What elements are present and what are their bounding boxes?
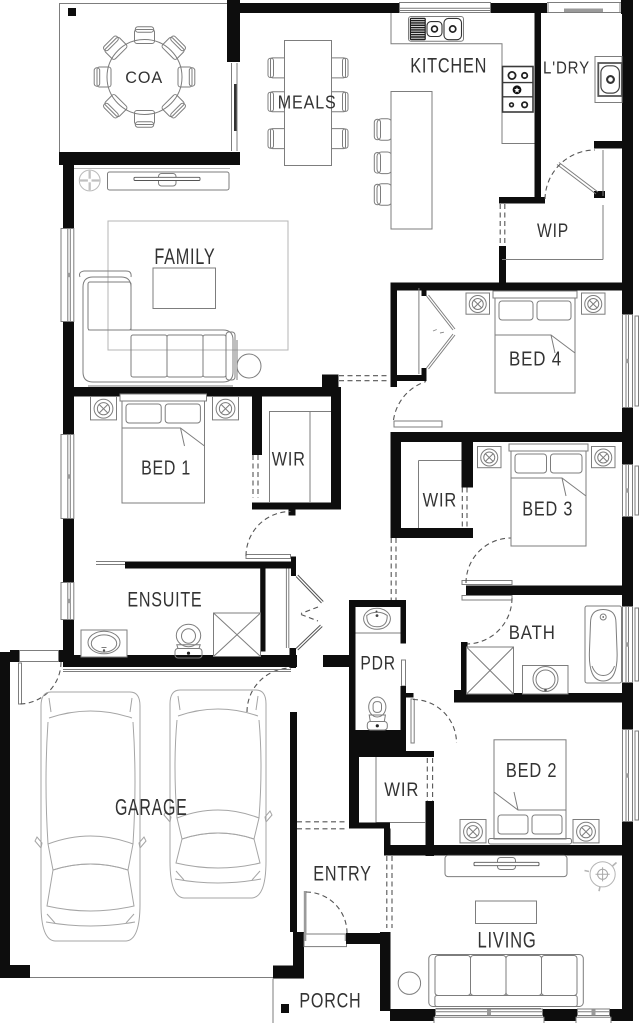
svg-text:BED 2: BED 2 (506, 760, 558, 782)
svg-text:ENSUITE: ENSUITE (127, 588, 202, 612)
svg-text:WIR: WIR (384, 780, 419, 801)
svg-text:WIR: WIR (272, 449, 306, 470)
svg-text:KITCHEN: KITCHEN (410, 55, 487, 78)
svg-text:L'DRY: L'DRY (543, 57, 590, 77)
svg-text:PORCH: PORCH (299, 990, 361, 1013)
svg-text:ENTRY: ENTRY (313, 862, 371, 885)
svg-text:GARAGE: GARAGE (115, 794, 188, 820)
svg-text:LIVING: LIVING (478, 928, 537, 953)
svg-text:BATH: BATH (509, 622, 556, 644)
svg-text:FAMILY: FAMILY (154, 244, 215, 269)
svg-text:WIR: WIR (423, 490, 458, 511)
svg-text:BED 4: BED 4 (509, 349, 562, 371)
svg-text:COA: COA (125, 68, 163, 87)
svg-text:BED 3: BED 3 (522, 499, 573, 521)
svg-text:BED 1: BED 1 (141, 458, 191, 480)
svg-text:WIP: WIP (537, 221, 569, 242)
svg-text:PDR: PDR (360, 652, 396, 674)
svg-text:MEALS: MEALS (278, 92, 337, 112)
